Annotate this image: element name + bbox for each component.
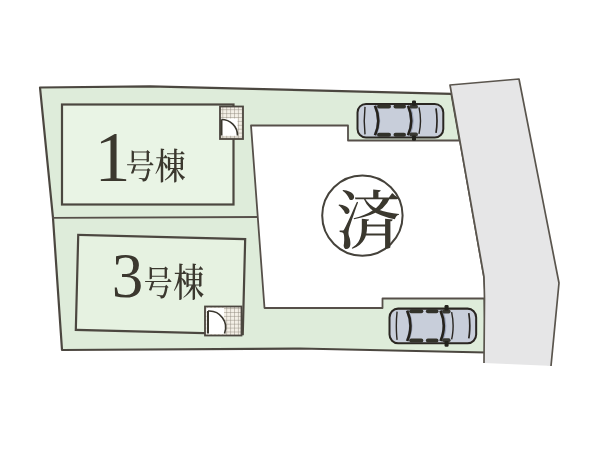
svg-text:1: 1: [95, 117, 131, 197]
svg-text:3: 3: [112, 241, 144, 311]
